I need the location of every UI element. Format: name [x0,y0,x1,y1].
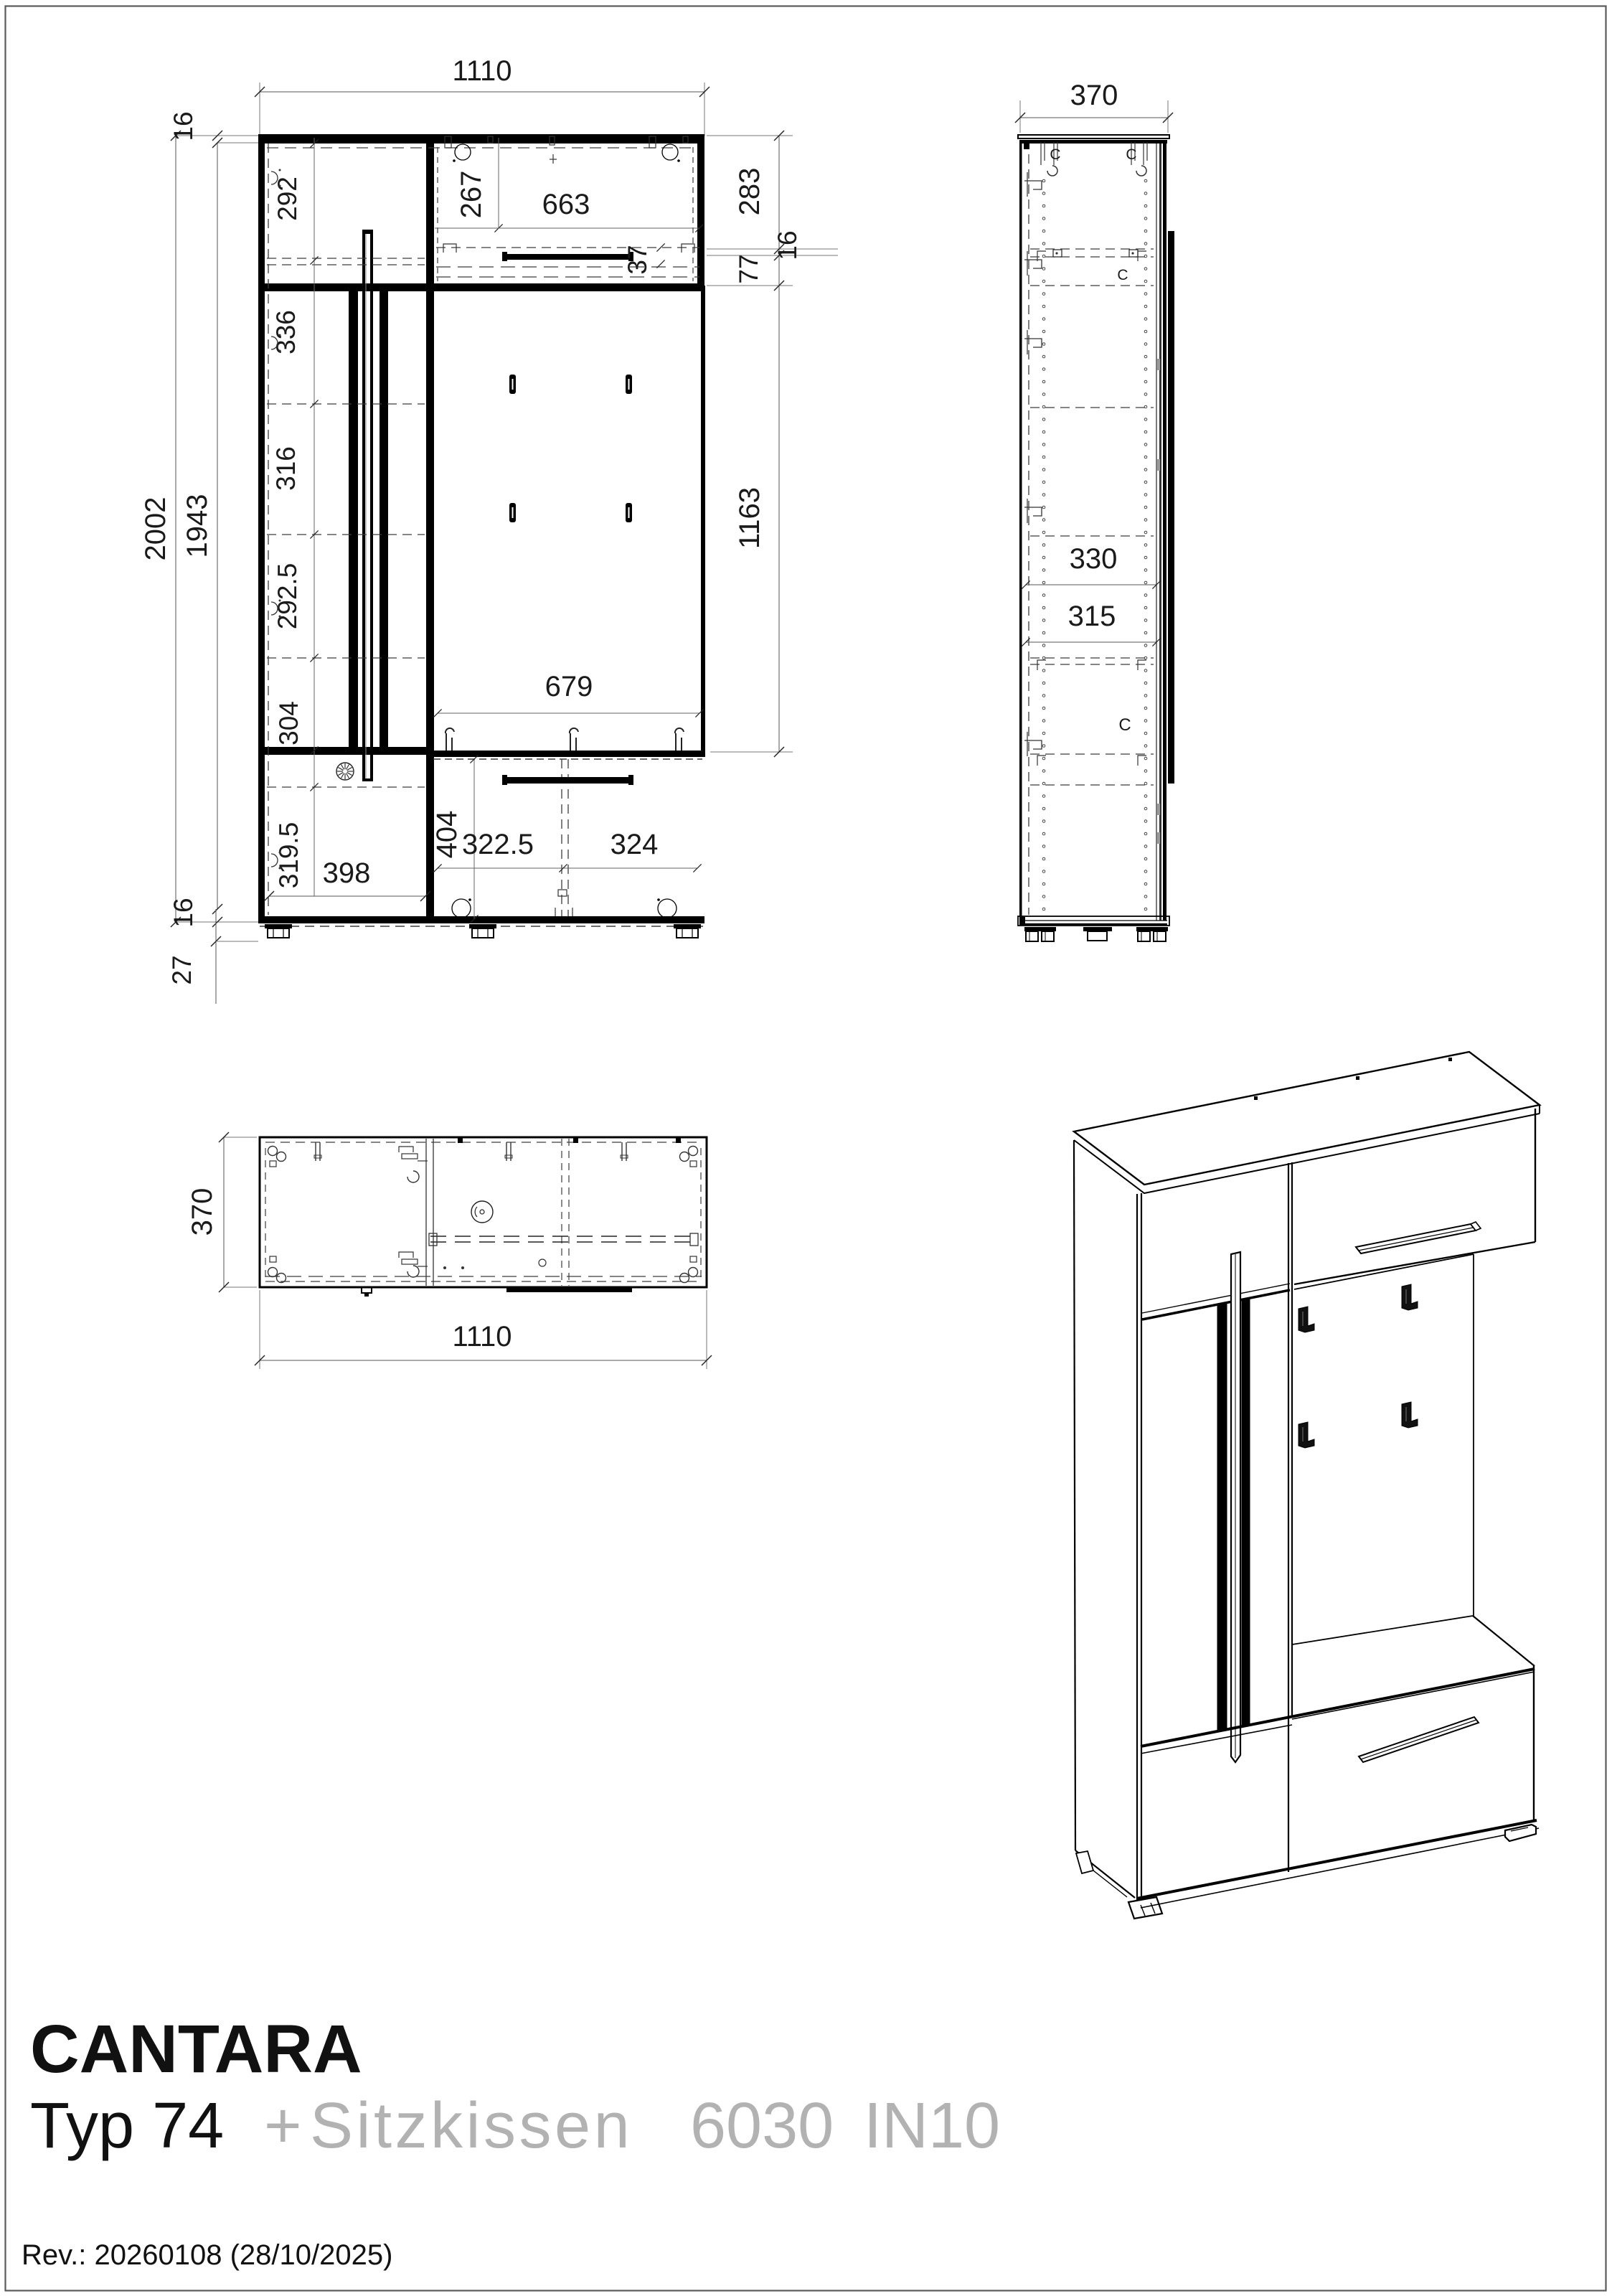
svg-text:1163: 1163 [734,487,765,549]
svg-text:304: 304 [274,701,303,745]
svg-text:679: 679 [545,671,593,702]
svg-text:IN10: IN10 [864,2090,1000,2162]
svg-text:1110: 1110 [452,55,512,87]
svg-text:370: 370 [187,1188,218,1236]
svg-text:292.5: 292.5 [273,563,302,630]
svg-text:C: C [1050,146,1060,163]
svg-text:2002: 2002 [140,497,171,561]
svg-text:322.5: 322.5 [462,829,534,860]
svg-text:283: 283 [734,168,765,216]
svg-text:16: 16 [773,230,802,260]
svg-text:404: 404 [431,811,463,859]
svg-text:77: 77 [734,254,763,283]
svg-text:6030: 6030 [690,2090,834,2162]
svg-text:27: 27 [167,955,197,984]
svg-text:398: 398 [323,857,371,889]
svg-text:C: C [1117,267,1128,283]
svg-text:1943: 1943 [182,494,213,558]
svg-text:370: 370 [1070,80,1118,111]
svg-text:319.5: 319.5 [274,822,303,889]
svg-text:16: 16 [169,111,198,141]
svg-text:+: + [264,2090,302,2162]
svg-text:292: 292 [273,177,302,221]
svg-text:Rev.: 20260108 (28/10/2025): Rev.: 20260108 (28/10/2025) [22,2239,392,2271]
svg-text:267: 267 [456,171,487,219]
svg-text:315: 315 [1068,601,1116,632]
svg-text:CANTARA: CANTARA [30,2011,362,2087]
svg-text:Typ 74: Typ 74 [30,2090,224,2162]
svg-text:37: 37 [623,245,652,274]
svg-text:C: C [1126,146,1136,163]
svg-text:16: 16 [169,898,198,927]
svg-text:330: 330 [1070,543,1118,575]
svg-text:324: 324 [611,829,659,860]
svg-text:1110: 1110 [452,1321,512,1352]
svg-text:316: 316 [271,446,301,491]
svg-text:C: C [1118,715,1131,735]
svg-text:Sitzkissen: Sitzkissen [310,2090,633,2162]
svg-text:663: 663 [542,189,590,220]
